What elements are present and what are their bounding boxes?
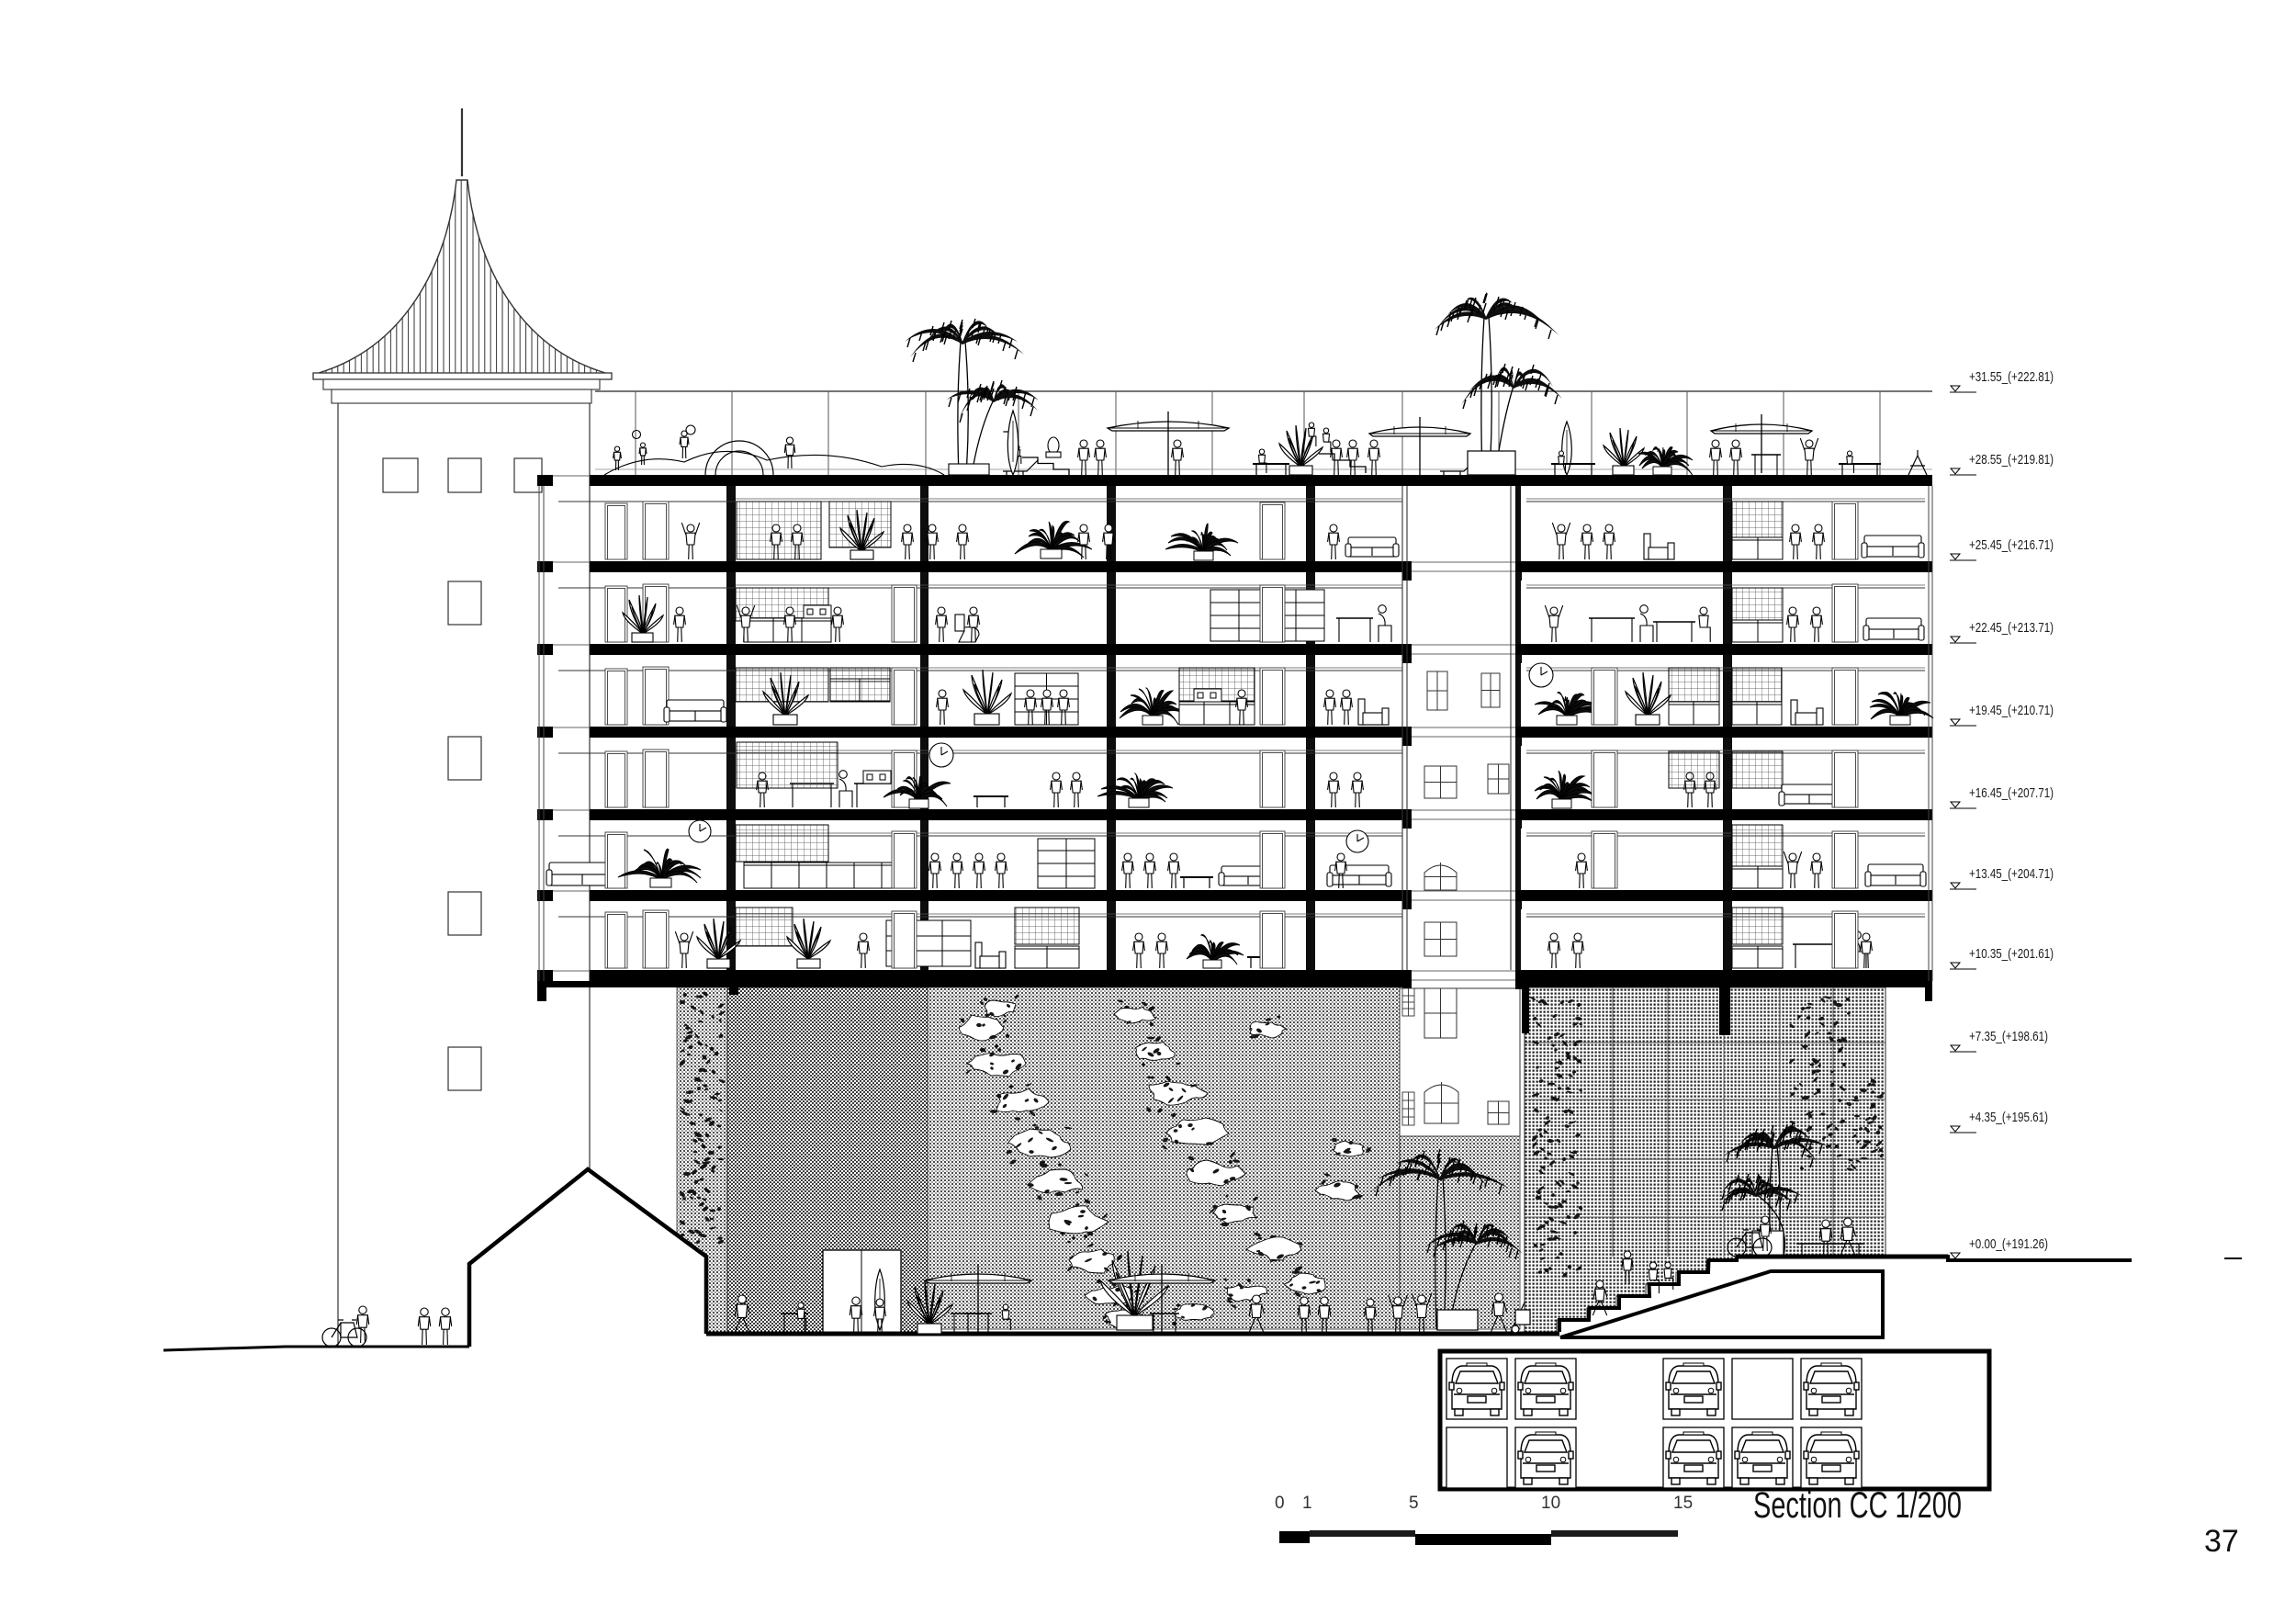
svg-text:10: 10: [1541, 1494, 1560, 1513]
svg-text:15: 15: [1673, 1494, 1693, 1513]
svg-text:+31.55_(+222.81): +31.55_(+222.81): [1969, 369, 2054, 385]
svg-text:+28.55_(+219.81): +28.55_(+219.81): [1969, 452, 2054, 468]
svg-text:37: 37: [2204, 1524, 2239, 1559]
svg-text:+19.45_(+210.71): +19.45_(+210.71): [1969, 703, 2054, 718]
svg-text:+25.45_(+216.71): +25.45_(+216.71): [1969, 537, 2054, 553]
svg-text:+13.45_(+204.71): +13.45_(+204.71): [1969, 866, 2054, 882]
svg-text:+7.35_(+198.61): +7.35_(+198.61): [1969, 1029, 2048, 1044]
svg-text:1: 1: [1302, 1494, 1312, 1513]
svg-text:0: 0: [1275, 1494, 1285, 1513]
svg-text:5: 5: [1409, 1494, 1419, 1513]
svg-text:Section CC 1/200: Section CC 1/200: [1753, 1485, 1962, 1526]
svg-text:+22.45_(+213.71): +22.45_(+213.71): [1969, 620, 2054, 636]
svg-text:+10.35_(+201.61): +10.35_(+201.61): [1969, 946, 2054, 962]
svg-text:+4.35_(+195.61): +4.35_(+195.61): [1969, 1110, 2048, 1125]
svg-text:+16.45_(+207.71): +16.45_(+207.71): [1969, 785, 2054, 801]
svg-text:+0.00_(+191.26): +0.00_(+191.26): [1969, 1236, 2048, 1252]
